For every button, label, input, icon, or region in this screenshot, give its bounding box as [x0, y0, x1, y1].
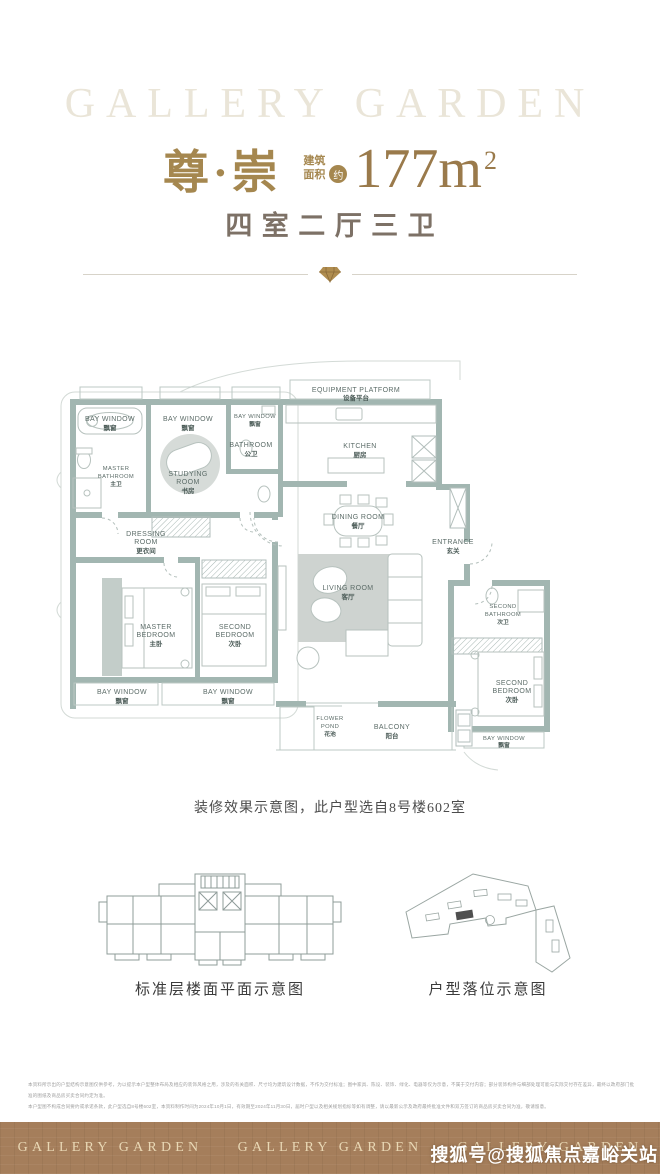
- room-label-master-bathroom-2: BATHROOM: [98, 474, 134, 480]
- room-label-kitchen: KITCHEN: [343, 443, 377, 450]
- room-label-dining-room: DINING ROOM: [332, 514, 385, 521]
- footer-brand-left: GALLERY GARDEN: [18, 1140, 203, 1156]
- standard-floor-outline: [99, 874, 341, 965]
- area-label-line2: 面积: [303, 169, 325, 183]
- disclaimer-line-2: 本户型图不构成合同要约或承诺条款，此户型选自8号楼602室，本资料制作时间为20…: [28, 1102, 636, 1113]
- room-label-second-bedroom-cn: 次卧: [229, 639, 243, 648]
- divider: [0, 266, 660, 283]
- site-outline: [406, 874, 570, 972]
- room-label-bay-window-2-cn: 飘窗: [182, 423, 196, 432]
- room-label-second-bathroom-2: BATHROOM: [485, 612, 521, 618]
- room-label-flower-pond-cn: 花池: [324, 730, 336, 738]
- room-label-bay-window-4-cn: 飘窗: [116, 696, 130, 705]
- floor-plan: BAY WINDOW 飘窗 BAY WINDOW 飘窗 BAY WINDOW 飘…: [40, 352, 620, 792]
- room-label-equipment-platform: EQUIPMENT PLATFORM: [312, 387, 400, 394]
- room-label-master-bathroom-cn: 主卫: [110, 480, 122, 488]
- room-label-kitchen-cn: 厨房: [354, 450, 368, 459]
- area-value: 177m2: [354, 141, 497, 197]
- room-label-master-bedroom: MASTER: [140, 624, 172, 631]
- room-label-dressing-room-2: ROOM: [134, 539, 157, 546]
- area-label: 建筑 面积: [303, 155, 325, 183]
- room-label-bay-window-6: BAY WINDOW: [483, 736, 525, 742]
- poster-page: GALLERY GARDEN 尊·崇 建筑 面积 约 177m2 四室二厅三卫: [0, 0, 660, 1174]
- room-label-second-bathroom: SECOND: [489, 604, 516, 610]
- room-label-master-bedroom-2: BEDROOM: [137, 632, 176, 639]
- disclaimer: 本资料所示出的户型结构示意图仅供参考，为以提示本户型整体布局及相应的装饰风格之用…: [28, 1080, 636, 1112]
- room-label-flower-pond: FLOWER: [316, 716, 343, 722]
- room-label-bathroom-cn: 公卫: [245, 450, 259, 458]
- room-label-bay-window-4: BAY WINDOW: [97, 689, 147, 696]
- brand-watermark: GALLERY GARDEN: [0, 80, 660, 128]
- room-label-dining-room-cn: 餐厅: [351, 521, 366, 530]
- room-label-bay-window-5: BAY WINDOW: [203, 689, 253, 696]
- divider-line-left: [83, 274, 308, 275]
- room-label-second-bathroom-cn: 次卫: [497, 618, 509, 626]
- area-superscript: 2: [484, 146, 497, 175]
- room-label-bathroom: BATHROOM: [229, 442, 272, 449]
- room-label-entrance-cn: 玄关: [447, 546, 461, 555]
- area-number: 177m: [354, 138, 482, 200]
- area-group: 建筑 面积 约 177m2: [303, 141, 497, 197]
- room-label-bay-window-5-cn: 飘窗: [222, 696, 236, 705]
- room-label-second-bedroom-2: SECOND: [496, 680, 528, 687]
- unit-location-caption: 户型落位示意图: [398, 978, 578, 999]
- room-label-second-bedroom-2: BEDROOM: [216, 632, 255, 639]
- room-label-second-bedroom: SECOND: [219, 624, 251, 631]
- room-label-flower-pond-2: POND: [321, 724, 339, 730]
- room-label-bay-window-6-cn: 飘窗: [498, 741, 510, 749]
- title-row: 尊·崇 建筑 面积 约 177m2: [0, 136, 660, 202]
- room-label-entrance: ENTRANCE: [432, 539, 474, 546]
- room-label-balcony-cn: 阳台: [386, 731, 400, 740]
- room-label-equipment-platform-cn: 设备平台: [343, 393, 370, 402]
- sohu-watermark: 搜狐号@搜狐焦点嘉峪关站: [430, 1141, 658, 1167]
- plan-caption: 装修效果示意图，此户型选自8号楼602室: [0, 797, 660, 817]
- layout-subtitle: 四室二厅三卫: [0, 204, 660, 243]
- footer-brand-center: GALLERY GARDEN: [238, 1140, 423, 1156]
- room-label-second-bedroom-2-cn: 次卧: [506, 695, 520, 704]
- standard-floor-caption: 标准层楼面平面示意图: [95, 978, 345, 999]
- room-label-studying-room-cn: 书房: [182, 486, 196, 495]
- room-label-living-room: LIVING ROOM: [322, 585, 373, 592]
- page-title: 尊·崇: [163, 136, 281, 202]
- standard-floor-diagram: [95, 866, 345, 974]
- approx-badge: 约: [329, 165, 347, 183]
- room-label-bay-window-3: BAY WINDOW: [234, 414, 276, 420]
- room-label-bay-window-1-cn: 飘窗: [104, 423, 118, 432]
- area-label-line1: 建筑: [303, 155, 325, 169]
- room-label-bay-window-1: BAY WINDOW: [85, 416, 135, 423]
- room-label-bay-window-3-cn: 飘窗: [249, 420, 261, 428]
- room-label-master-bathroom: MASTER: [103, 466, 130, 472]
- diamond-gem-icon: [318, 266, 342, 283]
- room-label-master-bedroom-cn: 主卧: [150, 639, 164, 648]
- divider-line-right: [352, 274, 577, 275]
- disclaimer-line-1: 本资料所示出的户型结构示意图仅供参考，为以提示本户型整体布局及相应的装饰风格之用…: [28, 1080, 636, 1102]
- room-label-studying-room-2: ROOM: [176, 479, 199, 486]
- room-label-dressing-room: DRESSING: [126, 531, 166, 538]
- room-label-second-bedroom-2b: BEDROOM: [493, 688, 532, 695]
- room-label-studying-room: STUDYING: [168, 471, 207, 478]
- unit-location-diagram: [398, 862, 578, 974]
- room-label-living-room-cn: 客厅: [341, 592, 356, 601]
- room-label-dressing-room-cn: 更衣间: [136, 546, 156, 555]
- room-label-balcony: BALCONY: [374, 724, 410, 731]
- room-label-bay-window-2: BAY WINDOW: [163, 416, 213, 423]
